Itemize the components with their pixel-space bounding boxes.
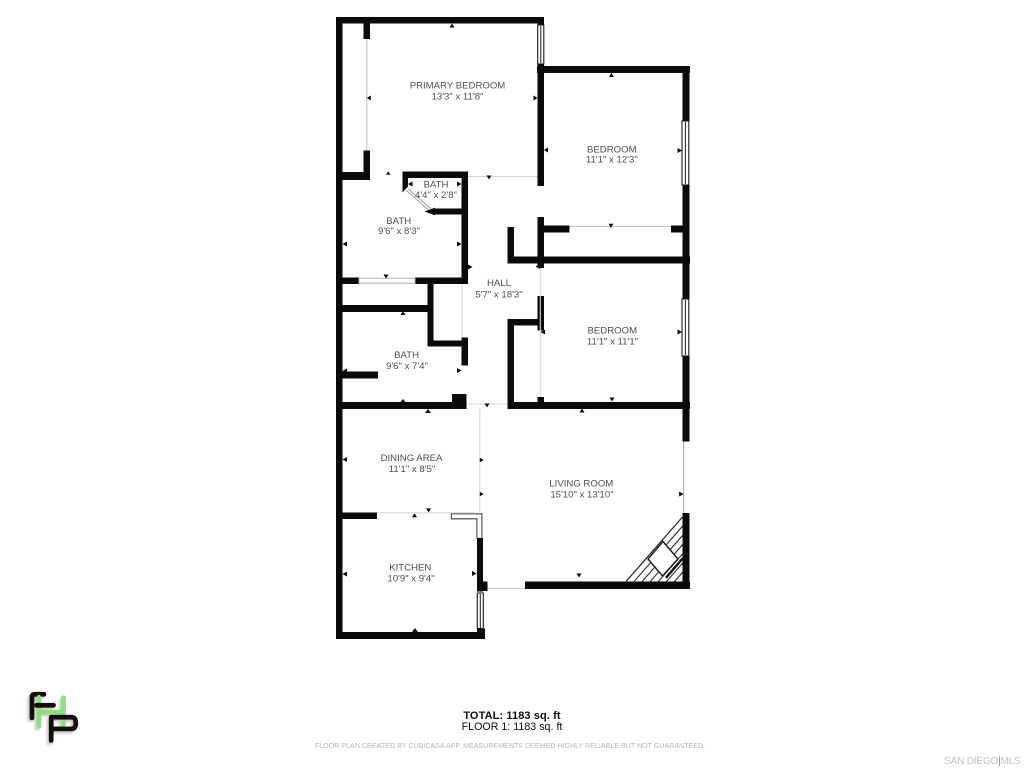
- svg-text:PRIMARY BEDROOM: PRIMARY BEDROOM: [410, 81, 506, 92]
- svg-text:BEDROOM: BEDROOM: [588, 326, 638, 337]
- svg-text:KITCHEN: KITCHEN: [389, 563, 431, 574]
- svg-text:11'1" x 8'5": 11'1" x 8'5": [389, 464, 436, 475]
- svg-text:11'1" x 11'1": 11'1" x 11'1": [587, 337, 638, 348]
- svg-text:10'9" x 9'4": 10'9" x 9'4": [387, 574, 434, 585]
- svg-text:HALL: HALL: [487, 278, 512, 289]
- svg-text:BATH: BATH: [394, 350, 419, 361]
- svg-text:SAN DIEGO|MLS: SAN DIEGO|MLS: [944, 756, 1021, 767]
- svg-text:FLOOR 1: 1183 sq. ft: FLOOR 1: 1183 sq. ft: [462, 721, 563, 733]
- svg-text:4'4" x 2'8": 4'4" x 2'8": [415, 190, 457, 201]
- svg-text:FLOOR PLAN CREATED BY CUBICASA: FLOOR PLAN CREATED BY CUBICASA APP. MEAS…: [315, 742, 705, 750]
- svg-text:13'3" x 11'8": 13'3" x 11'8": [432, 92, 484, 103]
- svg-text:LIVING ROOM: LIVING ROOM: [549, 479, 613, 490]
- svg-text:11'1" x 12'3": 11'1" x 12'3": [586, 155, 638, 166]
- svg-text:BATH: BATH: [424, 180, 449, 191]
- svg-text:9'6" x 8'3": 9'6" x 8'3": [378, 226, 420, 237]
- svg-text:15'10" x 13'10": 15'10" x 13'10": [550, 489, 613, 500]
- svg-text:DINING AREA: DINING AREA: [381, 453, 443, 464]
- svg-text:9'6" x 7'4": 9'6" x 7'4": [386, 361, 428, 372]
- svg-text:5'7" x 18'3": 5'7" x 18'3": [475, 290, 522, 301]
